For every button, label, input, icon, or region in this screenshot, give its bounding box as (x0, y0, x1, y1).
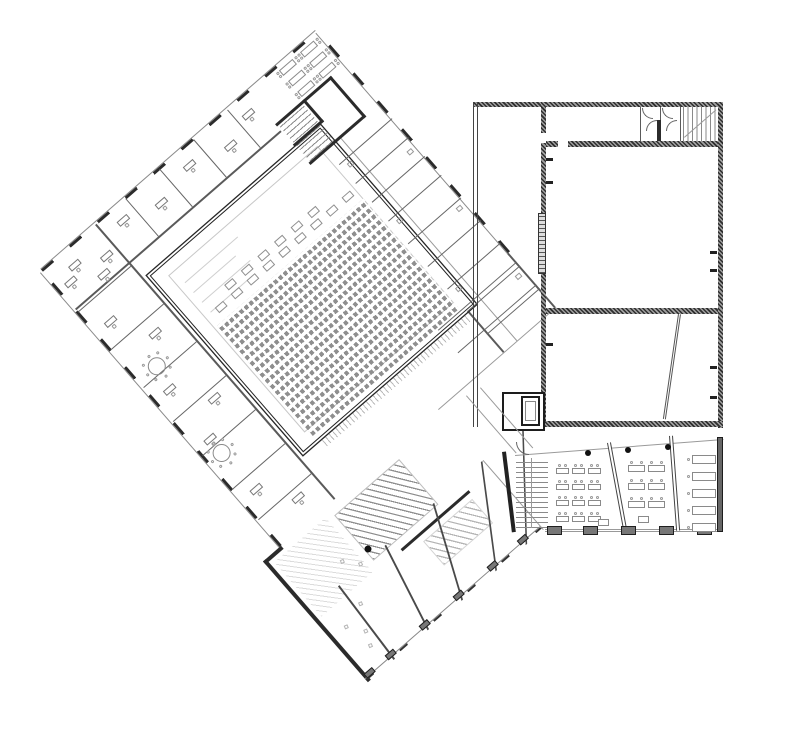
chair-dot (590, 496, 593, 499)
chair-dot (596, 496, 599, 499)
classroom-desk (588, 500, 601, 506)
column-dot (585, 450, 591, 456)
chair-dot (687, 509, 690, 512)
chair-dot (650, 461, 653, 464)
chair-dot (687, 458, 690, 461)
teacher-desk (598, 519, 609, 526)
chair-dot (580, 512, 583, 515)
classroom-desk (556, 468, 569, 474)
classroom-desk (692, 472, 716, 481)
classroom-desk (588, 484, 601, 490)
cw-stair-west-wall (502, 452, 515, 533)
classroom-desk (572, 468, 585, 474)
chair-dot (580, 480, 583, 483)
classroom-desk (572, 500, 585, 506)
classroom-desk (628, 483, 645, 490)
cw-partition-1 (607, 442, 627, 530)
classroom-desk (648, 465, 665, 472)
chair-dot (580, 464, 583, 467)
chair-dot (564, 496, 567, 499)
classroom-desk (648, 501, 665, 508)
chair-dot (558, 480, 561, 483)
chair-dot (574, 496, 577, 499)
chair-dot (650, 479, 653, 482)
classroom-desk (588, 468, 601, 474)
classroom-desk (692, 506, 716, 515)
chair-dot (596, 464, 599, 467)
cw-stair-treads (516, 458, 548, 528)
chair-dot (590, 464, 593, 467)
connector-wall-b (480, 387, 534, 448)
chair-dot (558, 512, 561, 515)
chair-dot (574, 512, 577, 515)
teacher-desk (638, 516, 649, 523)
chair-dot (660, 497, 663, 500)
chair-dot (590, 480, 593, 483)
cw-stair-divider (531, 458, 532, 528)
chair-dot (574, 480, 577, 483)
chair-dot (574, 464, 577, 467)
classroom-desk (692, 489, 716, 498)
floor-plan-canvas (0, 0, 800, 747)
chair-dot (630, 461, 633, 464)
window-pier (547, 526, 562, 535)
cw-right-wall (717, 437, 723, 532)
chair-dot (640, 497, 643, 500)
chair-dot (596, 480, 599, 483)
chair-dot (580, 496, 583, 499)
window-pier (659, 526, 674, 535)
chair-dot (596, 512, 599, 515)
classroom-wing (0, 0, 800, 747)
chair-dot (687, 475, 690, 478)
classroom-desk (572, 516, 585, 522)
chair-dot (640, 479, 643, 482)
chair-dot (687, 526, 690, 529)
chair-dot (650, 497, 653, 500)
chair-dot (564, 512, 567, 515)
chair-dot (660, 479, 663, 482)
window-pier (583, 526, 598, 535)
chair-dot (558, 496, 561, 499)
classroom-desk (692, 455, 716, 464)
classroom-desk (628, 465, 645, 472)
chair-dot (564, 464, 567, 467)
column-dot (665, 444, 671, 450)
chair-dot (564, 480, 567, 483)
chair-dot (558, 464, 561, 467)
window-pier (621, 526, 636, 535)
chair-dot (640, 461, 643, 464)
cw-top-line (515, 439, 723, 456)
door-arc (516, 442, 529, 455)
chair-dot (590, 512, 593, 515)
classroom-desk (572, 484, 585, 490)
cw-partition-2 (669, 436, 680, 531)
chair-dot (687, 492, 690, 495)
chair-dot (660, 461, 663, 464)
classroom-desk (556, 500, 569, 506)
classroom-desk (556, 484, 569, 490)
chair-dot (630, 479, 633, 482)
classroom-desk (692, 523, 716, 532)
connector-wall-a (466, 395, 517, 453)
column-dot (625, 447, 631, 453)
classroom-desk (556, 516, 569, 522)
classroom-desk (648, 483, 665, 490)
classroom-desk (628, 501, 645, 508)
chair-dot (630, 497, 633, 500)
